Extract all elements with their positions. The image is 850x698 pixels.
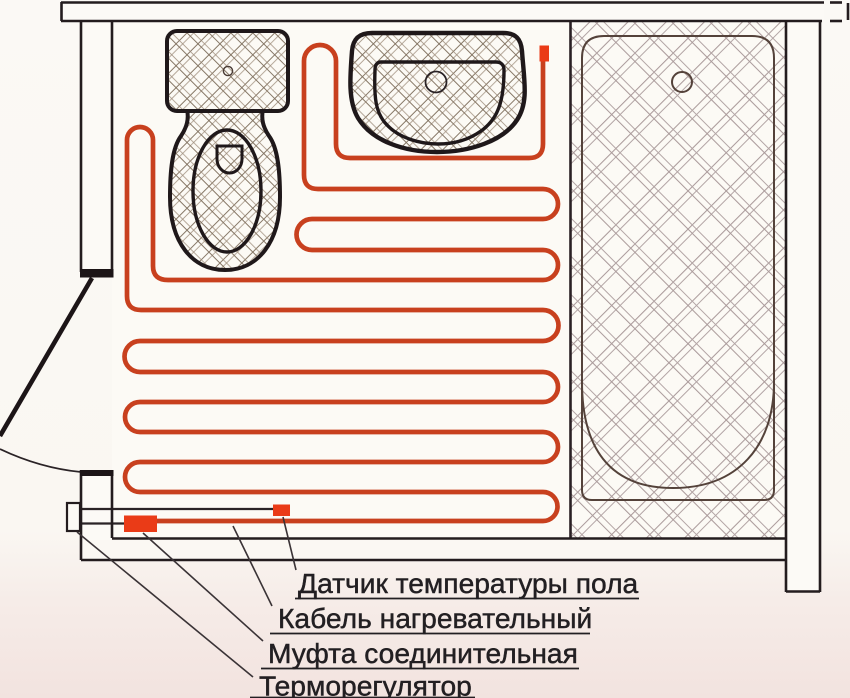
svg-text:Датчик температуры пола: Датчик температуры пола [298, 567, 639, 599]
svg-text:Кабель нагревательный: Кабель нагревательный [278, 602, 592, 634]
svg-text:Муфта соединительная: Муфта соединительная [268, 637, 578, 669]
svg-text:Терморегулятор: Терморегулятор [259, 670, 472, 698]
